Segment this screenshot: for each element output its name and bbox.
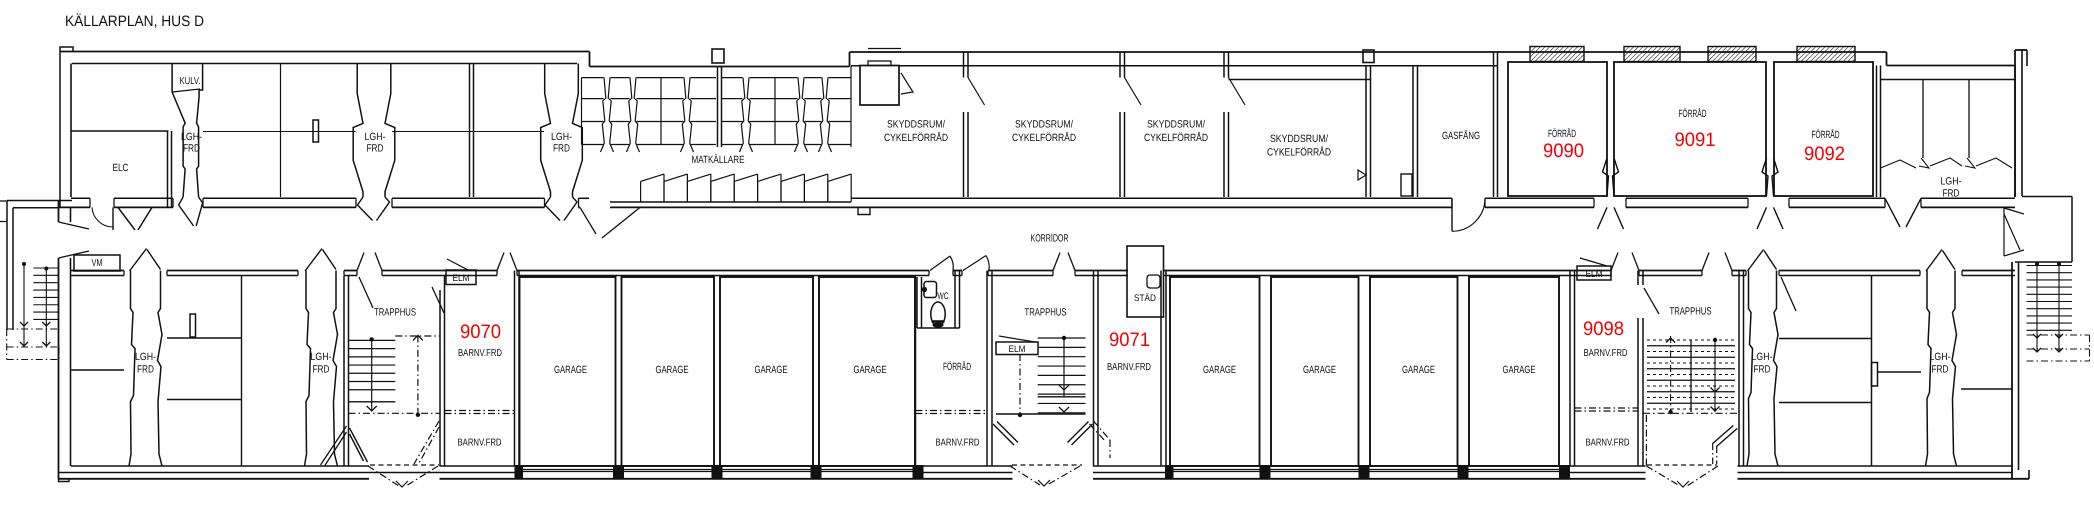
svg-text:GARAGE: GARAGE (854, 364, 887, 376)
svg-text:FÖRRÅD: FÖRRÅD (1679, 107, 1707, 120)
svg-text:GARAGE: GARAGE (1203, 364, 1236, 376)
svg-text:ELC: ELC (113, 162, 129, 174)
svg-text:BARNV.FRD: BARNV.FRD (1586, 438, 1630, 449)
svg-text:FÖRRÅD: FÖRRÅD (1548, 127, 1576, 140)
svg-text:LGH-: LGH- (1752, 351, 1773, 363)
svg-text:9091: 9091 (1675, 129, 1716, 151)
svg-text:FRD: FRD (1754, 364, 1771, 376)
svg-text:TRAPPHUS: TRAPPHUS (1670, 306, 1712, 318)
svg-text:LGH-: LGH- (181, 131, 202, 143)
svg-text:LGH-: LGH- (365, 131, 386, 143)
svg-text:STÄD: STÄD (1134, 293, 1156, 304)
svg-text:KÄLLARPLAN, HUS D: KÄLLARPLAN, HUS D (65, 13, 204, 30)
svg-text:LGH-: LGH- (311, 351, 332, 363)
svg-text:FRD: FRD (137, 364, 154, 376)
svg-text:TRAPPHUS: TRAPPHUS (374, 307, 416, 319)
svg-text:GARAGE: GARAGE (1303, 364, 1336, 376)
svg-text:KULV.: KULV. (180, 76, 201, 87)
svg-text:LGH-: LGH- (1930, 351, 1951, 363)
svg-text:9070: 9070 (460, 321, 501, 343)
svg-text:LGH-: LGH- (1941, 176, 1962, 188)
svg-text:VM: VM (92, 258, 103, 269)
svg-text:GASFÅNG: GASFÅNG (1442, 129, 1480, 142)
svg-text:BARNV.FRD: BARNV.FRD (458, 438, 502, 449)
svg-text:KORRIDOR: KORRIDOR (1031, 233, 1069, 245)
svg-text:FRD: FRD (367, 143, 384, 155)
svg-text:GARAGE: GARAGE (755, 364, 788, 376)
svg-text:ELM: ELM (1586, 269, 1603, 280)
svg-text:CYKELFÖRRÅD: CYKELFÖRRÅD (884, 131, 948, 144)
svg-text:BARNV.FRD: BARNV.FRD (936, 438, 980, 449)
svg-text:BARNV.FRD: BARNV.FRD (458, 348, 502, 359)
svg-text:LGH-: LGH- (551, 131, 572, 143)
svg-text:9092: 9092 (1804, 143, 1845, 165)
svg-text:SKYDDSRUM/: SKYDDSRUM/ (887, 119, 945, 131)
svg-text:FRD: FRD (1943, 188, 1960, 200)
svg-text:9071: 9071 (1109, 329, 1150, 351)
svg-text:CYKELFÖRRÅD: CYKELFÖRRÅD (1012, 131, 1076, 144)
svg-text:SKYDDSRUM/: SKYDDSRUM/ (1015, 119, 1073, 131)
svg-text:LGH-: LGH- (135, 351, 156, 363)
svg-text:GARAGE: GARAGE (656, 364, 689, 376)
svg-text:SKYDDSRUM/: SKYDDSRUM/ (1270, 133, 1328, 145)
svg-text:FÖRRÅD: FÖRRÅD (1812, 128, 1840, 141)
svg-text:TRAPPHUS: TRAPPHUS (1025, 307, 1067, 319)
svg-text:9090: 9090 (1543, 140, 1584, 162)
svg-text:GARAGE: GARAGE (1503, 364, 1536, 376)
svg-text:FRD: FRD (183, 143, 200, 155)
svg-text:9098: 9098 (1583, 318, 1624, 340)
svg-text:CYKELFÖRRÅD: CYKELFÖRRÅD (1144, 131, 1208, 144)
svg-text:FÖRRÅD: FÖRRÅD (943, 360, 971, 373)
svg-text:BARNV.FRD: BARNV.FRD (1584, 348, 1628, 359)
svg-text:WC: WC (938, 291, 949, 302)
svg-text:ELM: ELM (1009, 344, 1026, 355)
svg-text:MATKÄLLARE: MATKÄLLARE (692, 154, 745, 166)
svg-text:ELM: ELM (453, 273, 470, 284)
svg-text:SKYDDSRUM/: SKYDDSRUM/ (1147, 119, 1205, 131)
svg-text:CYKELFÖRRÅD: CYKELFÖRRÅD (1267, 146, 1331, 159)
svg-text:FRD: FRD (313, 364, 330, 376)
svg-text:FRD: FRD (1932, 364, 1949, 376)
svg-text:GARAGE: GARAGE (554, 364, 587, 376)
svg-text:BARNV.FRD: BARNV.FRD (1107, 362, 1151, 373)
svg-text:GARAGE: GARAGE (1402, 364, 1435, 376)
svg-text:FRD: FRD (553, 143, 570, 155)
